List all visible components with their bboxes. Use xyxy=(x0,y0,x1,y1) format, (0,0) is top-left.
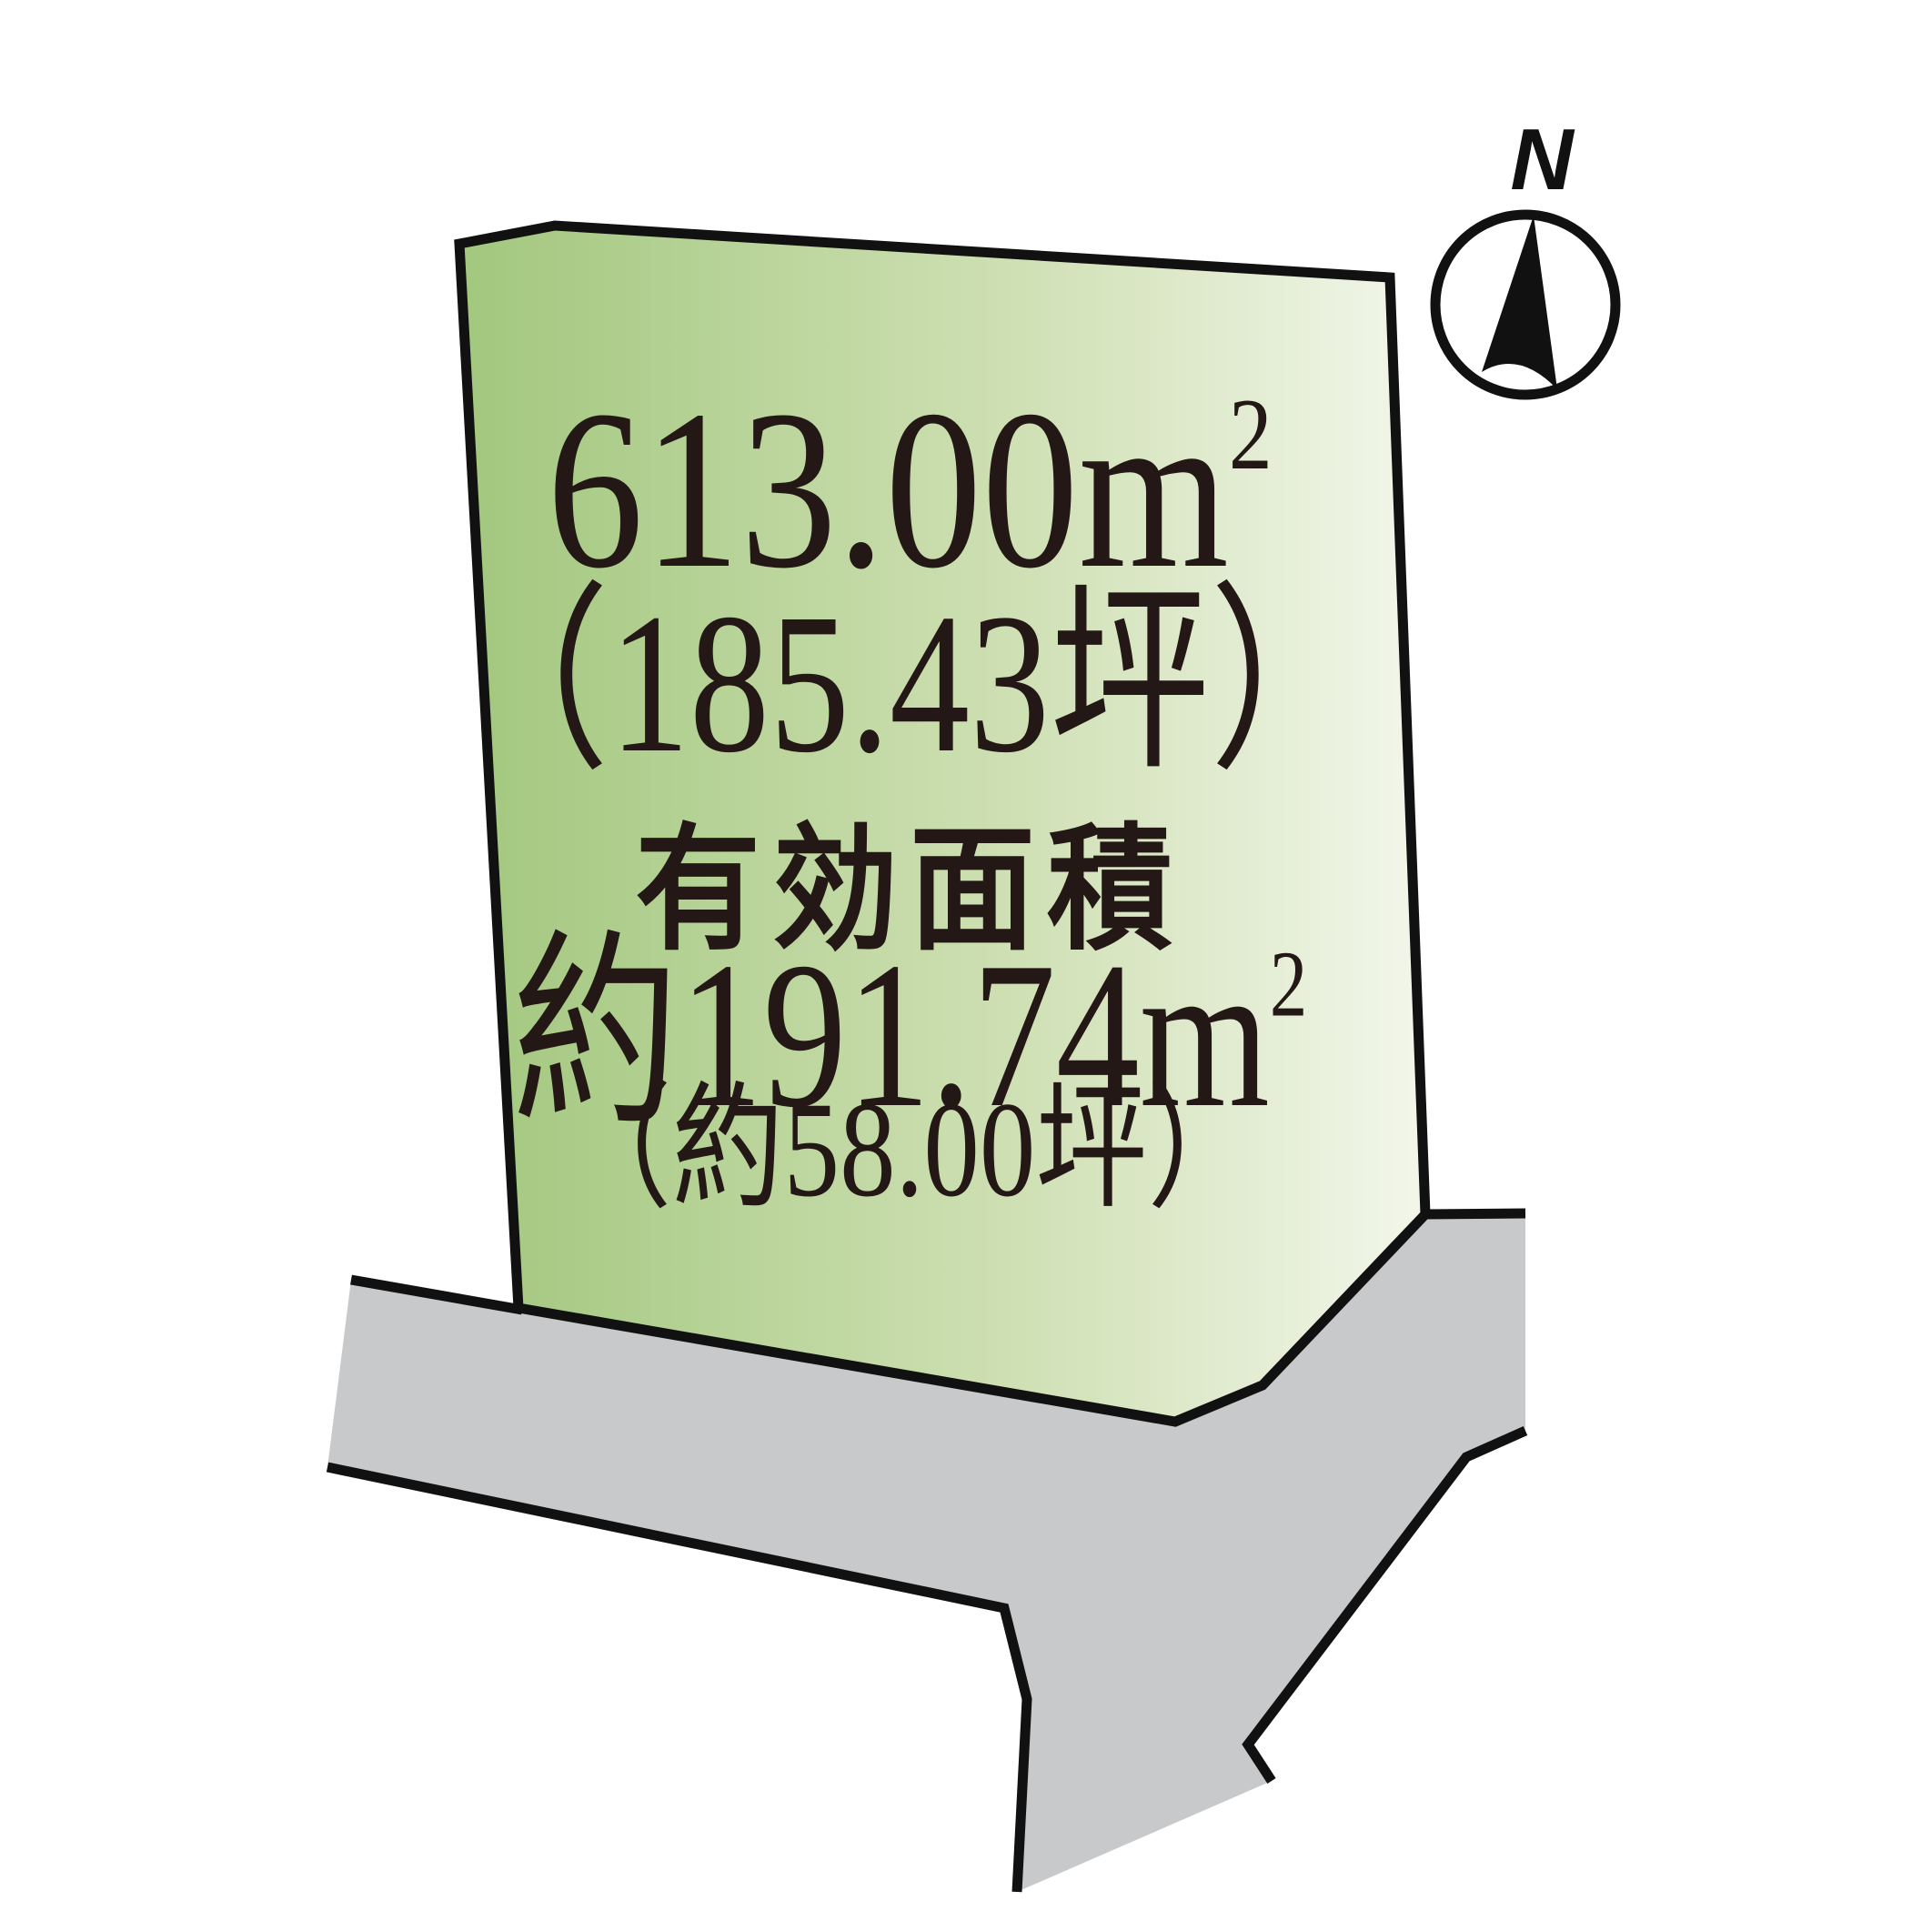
parcel-area-tsubo: （185.43坪） xyxy=(335,583,1484,783)
compass xyxy=(1435,215,1615,395)
parcel-area-sqm-superscript: 2 xyxy=(1229,378,1273,491)
parcel-area-sqm: 613.00m2 xyxy=(299,377,1521,604)
effective-area-sqm-superscript: 2 xyxy=(1270,933,1307,1037)
land-plot-diagram: N 613.00m2 （185.43坪） 有効面積 約191.74m2 （約58… xyxy=(0,0,1932,1931)
effective-area-tsubo: （約58.00坪） xyxy=(320,1081,1499,1218)
compass-north-label: N xyxy=(1478,116,1605,204)
